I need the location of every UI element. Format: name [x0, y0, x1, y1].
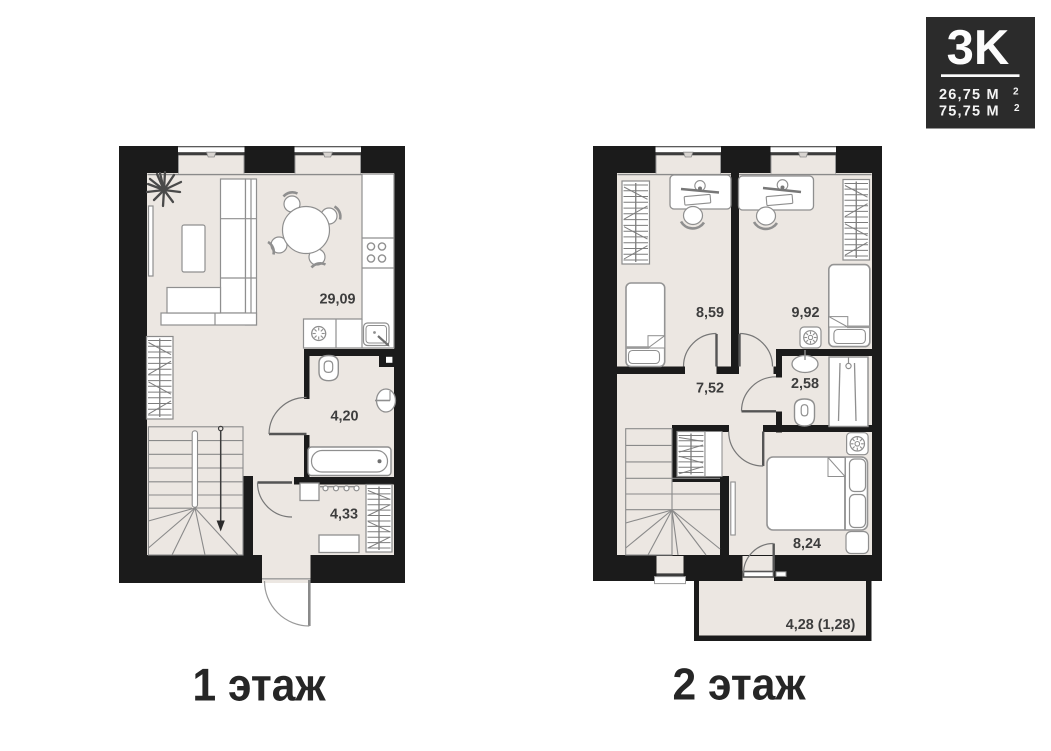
svg-text:2: 2 [1014, 103, 1020, 114]
svg-text:7,52: 7,52 [696, 380, 724, 396]
svg-text:2,58: 2,58 [791, 376, 819, 392]
svg-text:8,59: 8,59 [696, 305, 724, 321]
svg-text:26,75 М: 26,75 М [939, 87, 1000, 103]
svg-text:2 этаж: 2 этаж [673, 659, 807, 710]
svg-text:2: 2 [1013, 87, 1019, 98]
svg-text:4,28 (1,28): 4,28 (1,28) [786, 617, 856, 633]
svg-text:1 этаж: 1 этаж [193, 659, 326, 711]
svg-text:4,33: 4,33 [330, 506, 358, 522]
svg-text:8,24: 8,24 [793, 536, 821, 552]
svg-text:4,20: 4,20 [330, 408, 358, 424]
svg-text:75,75 М: 75,75 М [939, 104, 1000, 120]
svg-text:9,92: 9,92 [791, 305, 819, 321]
svg-text:3K: 3K [947, 21, 1010, 75]
svg-text:29,09: 29,09 [319, 292, 355, 308]
